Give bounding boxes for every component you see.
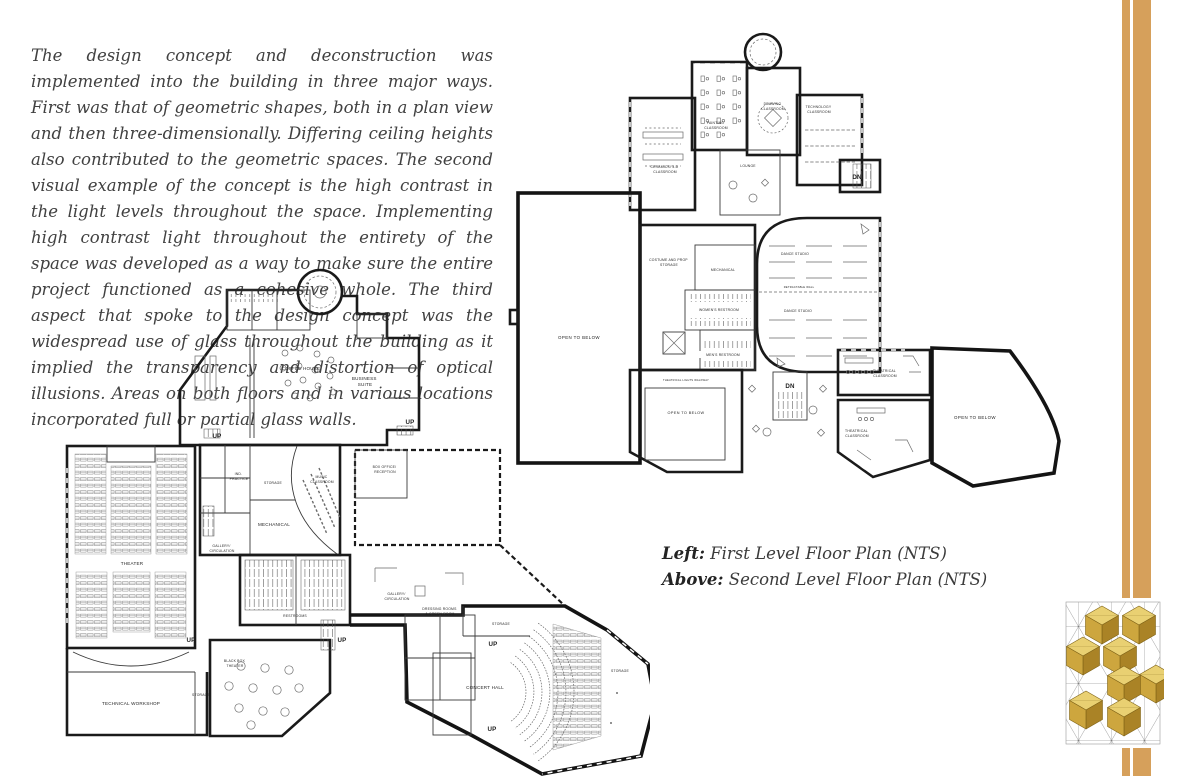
up-label-4: UP [338,637,347,644]
up-label-2: UP [406,419,415,426]
room-label-technical-workshop: TECHNICAL WORKSHOP [102,701,160,706]
room-label-theater: THEATER [121,561,144,566]
music-mechanical-restrooms-block: IND. PRACTICE STORAGE MUSIC CLASSROOM ME… [200,445,350,625]
open-to-below-right: OPEN TO BELOW [932,348,1059,486]
open-below-left-label: OPEN TO BELOW [558,335,600,340]
room-label-gallery-circulation-2: GALLERY/ CIRCULATION [385,592,410,601]
walkway-label: THEATRICAL LIGHTS WALKWAY [663,378,709,382]
room-label-restrooms: RESTROOMS [283,614,307,618]
concert-hall-wing: DRESSING ROOMS & GREEN ROOM STORAGE CONC… [350,606,650,774]
room-label-concert-hall: CONCERT HALL [466,685,504,690]
second-floor-plan: PAINTING CLASSROOM DRAWING CLASSROOM TEC… [505,20,1070,505]
open-below-right-label: OPEN TO BELOW [954,415,996,420]
room-label-ind-practice: IND. PRACTICE [230,472,249,481]
cube-pattern-art [1062,598,1164,748]
room-label-painting: PAINTING CLASSROOM [704,121,727,130]
up-label-3: UP [187,637,196,644]
backstage-body: COSTUME AND PROP STORAGE MECHANICAL WOME… [640,225,755,370]
room-label-ceramics: CERAMICS/ 3-D CLASSROOM [650,165,679,174]
theatrical-lights-walkway: THEATRICAL LIGHTS WALKWAY OPEN TO BELOW [630,370,742,472]
room-label-mens-restroom: MEN'S RESTROOM [706,353,740,357]
open-to-below-left: OPEN TO BELOW [510,193,640,463]
retractable-wall-label: RETRACTABLE WALL [784,285,815,289]
theater-block: THEATER UP TECHNICAL WORKSHOP STORAGE [67,446,210,735]
dn-label-2: DN [785,383,795,390]
room-label-storage-a: STORAGE [192,693,210,697]
room-label-black-box: BLACK BOX THEATER [224,659,246,668]
room-label-drawing: DRAWING CLASSROOM [761,102,784,111]
room-label-lounge: LOUNGE [740,164,756,168]
plan-captions: Left: First Level Floor Plan (NTS) Above… [662,541,987,593]
room-label-music-classroom: MUSIC CLASSROOM [310,475,333,484]
room-label-dance-studio-1: DANCE STUDIO [781,252,809,256]
portfolio-page: The design concept and deconstruction wa… [0,0,1200,776]
room-label-box-office: BOX OFFICE/ RECEPTION [373,465,398,474]
black-box-theater: BLACK BOX THEATER [210,640,330,736]
up-label-6: UP [488,726,497,733]
caption-above-label: Above: [662,570,724,589]
up-label-1: UP [213,433,222,440]
room-label-storage-d: STORAGE [611,669,629,673]
room-label-theatrical-2: THEATRICAL CLASSROOM [845,429,869,438]
room-label-coffee-house: COFFEE HOUSE [282,366,321,371]
room-label-gallery-circulation-1: GALLERY/ CIRCULATION [210,544,235,553]
stair-lobby: DN [748,372,826,436]
caption-above: Above: Second Level Floor Plan (NTS) [662,567,987,593]
room-label-dressing-rooms: DRESSING ROOMS & GREEN ROOM [422,607,457,616]
up-label-5: UP [489,641,498,648]
open-below-small-label: OPEN TO BELOW [668,411,705,415]
coffee-tables [280,345,336,401]
caption-left-text: First Level Floor Plan (NTS) [705,544,947,563]
room-label-business-suite: BUSINESS SUITE [352,376,378,387]
room-label-mechanical-2: MECHANICAL [711,268,735,272]
room-label-theatrical-1: THEATRICAL CLASSROOM [873,369,897,378]
room-label-storage-b: STORAGE [264,481,282,485]
caption-above-text: Second Level Floor Plan (NTS) [724,570,988,589]
caption-left-label: Left: [662,544,705,563]
room-label-dance-studio-2: DANCE STUDIO [784,309,812,313]
room-label-technology: TECHNOLOGY CLASSROOM [806,105,833,114]
room-label-storage-c: STORAGE [492,622,510,626]
room-label-costume-storage: COSTUME AND PROP STORAGE [649,258,689,267]
classroom-wing: PAINTING CLASSROOM DRAWING CLASSROOM TEC… [630,34,880,215]
coffee-house-wing: COFFEE HOUSE BUSINESS SUITE UP UP [180,270,419,445]
room-label-womens-restroom: WOMEN'S RESTROOM [699,308,739,312]
dn-label-1: DN [852,174,862,181]
room-label-mechanical: MECHANICAL [258,522,290,527]
theatrical-classrooms: THEATRICAL CLASSROOM THEATRICAL CLASSROO… [838,350,930,477]
caption-left: Left: First Level Floor Plan (NTS) [662,541,987,567]
